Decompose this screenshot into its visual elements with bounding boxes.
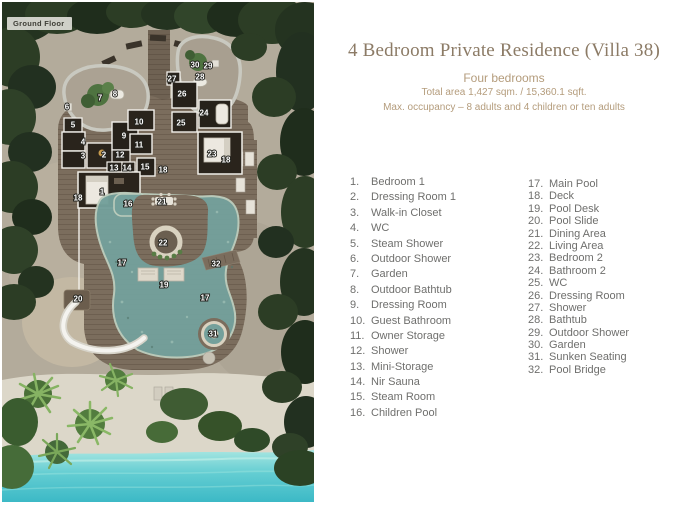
plan-marker-6: 6 (65, 103, 70, 112)
legend-item-label: Owner Storage (371, 330, 445, 342)
plan-marker-22: 22 (159, 239, 168, 248)
legend-item: 8.Outdoor Bathtub (350, 284, 456, 299)
legend-item-label: Garden (371, 268, 408, 280)
plan-marker-30: 30 (191, 61, 200, 70)
legend-item-label: Shower (371, 345, 408, 357)
plan-marker-4: 4 (81, 138, 86, 147)
plan-marker-26: 26 (178, 90, 187, 99)
plan-marker-20: 20 (74, 295, 83, 304)
plan-marker-9: 9 (122, 132, 127, 141)
total-area-line: Total area 1,427 sqm. / 15,360.1 sqft. (318, 87, 690, 100)
plan-marker-17: 17 (118, 259, 127, 268)
legend-item-number: 2. (350, 191, 371, 203)
legend-item-label: Living Area (549, 240, 603, 252)
legend-item-label: WC (371, 222, 389, 234)
legend-item: 12.Shower (350, 345, 456, 360)
legend-item-number: 27. (528, 302, 549, 314)
legend-item-label: Shower (549, 302, 586, 314)
legend-item: 14.Nir Sauna (350, 376, 456, 391)
subtitle: Four bedrooms (318, 71, 690, 85)
legend-item: 26.Dressing Room (528, 290, 629, 302)
ground-floor-label: Ground Floor (7, 17, 72, 30)
legend-item-label: Children Pool (371, 407, 437, 419)
legend-item-label: Outdoor Bathtub (371, 284, 452, 296)
legend-item-label: Pool Bridge (549, 364, 606, 376)
legend-item-label: Nir Sauna (371, 376, 420, 388)
legend-item: 25.WC (528, 277, 629, 289)
legend-item: 21.Dining Area (528, 228, 629, 240)
legend-item-label: Bedroom 2 (549, 252, 603, 264)
legend-item-label: Bathtub (549, 314, 587, 326)
legend-item: 20.Pool Slide (528, 215, 629, 227)
plan-marker-8: 8 (113, 90, 118, 99)
legend-item-label: Dressing Room 1 (371, 191, 456, 203)
legend-item-number: 19. (528, 203, 549, 215)
legend-item-label: WC (549, 277, 567, 289)
legend-item-label: Pool Slide (549, 215, 599, 227)
plan-marker-24: 24 (200, 109, 209, 118)
legend-item: 15.Steam Room (350, 391, 456, 406)
legend-item-label: Dressing Room (549, 290, 625, 302)
legend-item-number: 15. (350, 391, 371, 403)
plan-marker-7: 7 (98, 94, 103, 103)
legend-item: 6.Outdoor Shower (350, 253, 456, 268)
legend-item-number: 7. (350, 268, 371, 280)
plan-marker-18: 18 (222, 156, 231, 165)
legend-item: 4.WC (350, 222, 456, 237)
legend-item-number: 16. (350, 407, 371, 419)
legend-item-number: 14. (350, 376, 371, 388)
plan-marker-23: 23 (208, 150, 217, 159)
plan-marker-5: 5 (71, 121, 76, 130)
occupancy-line: Max. occupancy – 8 adults and 4 children… (318, 102, 690, 115)
legend-item-number: 26. (528, 290, 549, 302)
plan-marker-31: 31 (209, 330, 218, 339)
plan-marker-17: 17 (201, 294, 210, 303)
legend-item-number: 5. (350, 238, 371, 250)
plan-marker-21: 21 (158, 198, 167, 207)
legend-item-label: Dining Area (549, 228, 606, 240)
legend-item: 13.Mini-Storage (350, 361, 456, 376)
plan-marker-13: 13 (110, 164, 119, 173)
legend-item-number: 8. (350, 284, 371, 296)
floor-plan-art: 1234567891011121314151617171818181920212… (2, 2, 314, 502)
legend-item: 11.Owner Storage (350, 330, 456, 345)
legend-item-number: 9. (350, 299, 371, 311)
legend-item-label: Deck (549, 190, 574, 202)
legend-item: 22.Living Area (528, 240, 629, 252)
legend-item: 17.Main Pool (528, 178, 629, 190)
legend-item-label: Dressing Room (371, 299, 447, 311)
legend-item: 31.Sunken Seating (528, 351, 629, 363)
plan-marker-32: 32 (212, 260, 221, 269)
page-title: 4 Bedroom Private Residence (Villa 38) (318, 40, 690, 62)
legend-item-number: 30. (528, 339, 549, 351)
legend-item-number: 29. (528, 327, 549, 339)
legend-item: 28.Bathtub (528, 314, 629, 326)
legend-item-number: 11. (350, 330, 371, 342)
plan-marker-29: 29 (204, 62, 213, 71)
legend-item-number: 6. (350, 253, 371, 265)
legend-item: 32.Pool Bridge (528, 364, 629, 376)
plan-marker-2: 2 (102, 151, 107, 160)
legend-item: 27.Shower (528, 302, 629, 314)
legend-item-label: Bathroom 2 (549, 265, 606, 277)
legend-item-number: 23. (528, 252, 549, 264)
plan-marker-18: 18 (74, 194, 83, 203)
legend-item-number: 32. (528, 364, 549, 376)
legend-item-number: 18. (528, 190, 549, 202)
legend-item-number: 21. (528, 228, 549, 240)
legend-item: 18.Deck (528, 190, 629, 202)
legend-item-label: Bedroom 1 (371, 176, 425, 188)
legend-item-number: 24. (528, 265, 549, 277)
legend-item: 29.Outdoor Shower (528, 327, 629, 339)
legend-item-label: Main Pool (549, 178, 598, 190)
legend-item: 30.Garden (528, 339, 629, 351)
legend-item-label: Steam Room (371, 391, 435, 403)
legend-item-label: Guest Bathroom (371, 315, 451, 327)
legend-item: 24.Bathroom 2 (528, 265, 629, 277)
legend-item: 19.Pool Desk (528, 203, 629, 215)
plan-marker-27: 27 (168, 75, 177, 84)
legend-item: 10.Guest Bathroom (350, 315, 456, 330)
plan-marker-19: 19 (160, 281, 169, 290)
legend-item: 1.Bedroom 1 (350, 176, 456, 191)
legend-item-label: Walk-in Closet (371, 207, 442, 219)
legend-item-label: Mini-Storage (371, 361, 433, 373)
legend-item: 2.Dressing Room 1 (350, 191, 456, 206)
info-panel: 4 Bedroom Private Residence (Villa 38) F… (318, 0, 690, 509)
header: 4 Bedroom Private Residence (Villa 38) F… (318, 0, 690, 114)
legend-item-number: 28. (528, 314, 549, 326)
plan-marker-25: 25 (177, 119, 186, 128)
legend-item: 3.Walk-in Closet (350, 207, 456, 222)
legend-item-number: 25. (528, 277, 549, 289)
legend-item-label: Outdoor Shower (549, 327, 629, 339)
legend-item-number: 10. (350, 315, 371, 327)
legend-item-number: 3. (350, 207, 371, 219)
legend-column-2: 17.Main Pool18.Deck19.Pool Desk20.Pool S… (528, 178, 629, 376)
legend-item-label: Sunken Seating (549, 351, 627, 363)
legend-column-1: 1.Bedroom 12.Dressing Room 13.Walk-in Cl… (350, 176, 456, 422)
legend-item: 7.Garden (350, 268, 456, 283)
legend-item-number: 31. (528, 351, 549, 363)
plan-marker-11: 11 (135, 141, 144, 150)
plan-marker-3: 3 (81, 152, 86, 161)
plan-marker-12: 12 (116, 151, 125, 160)
legend-item-label: Garden (549, 339, 586, 351)
plan-marker-15: 15 (141, 163, 150, 172)
legend-item-number: 13. (350, 361, 371, 373)
legend-item-label: Steam Shower (371, 238, 443, 250)
legend-item-label: Pool Desk (549, 203, 599, 215)
legend-item: 16.Children Pool (350, 407, 456, 422)
legend-item: 23.Bedroom 2 (528, 252, 629, 264)
plan-marker-10: 10 (135, 118, 144, 127)
legend-item: 9.Dressing Room (350, 299, 456, 314)
legend-item: 5.Steam Shower (350, 238, 456, 253)
plan-marker-28: 28 (196, 73, 205, 82)
plan-marker-18: 18 (159, 166, 168, 175)
legend-item-number: 20. (528, 215, 549, 227)
floor-plan-image: 1234567891011121314151617171818181920212… (2, 2, 314, 502)
plan-marker-16: 16 (124, 200, 133, 209)
legend-item-number: 17. (528, 178, 549, 190)
villa-plan-page: 1234567891011121314151617171818181920212… (0, 0, 690, 509)
legend-item-number: 1. (350, 176, 371, 188)
legend-item-number: 22. (528, 240, 549, 252)
legend-item-label: Outdoor Shower (371, 253, 451, 265)
plan-marker-1: 1 (100, 188, 105, 197)
plan-marker-14: 14 (123, 164, 132, 173)
legend-item-number: 12. (350, 345, 371, 357)
legend-item-number: 4. (350, 222, 371, 234)
